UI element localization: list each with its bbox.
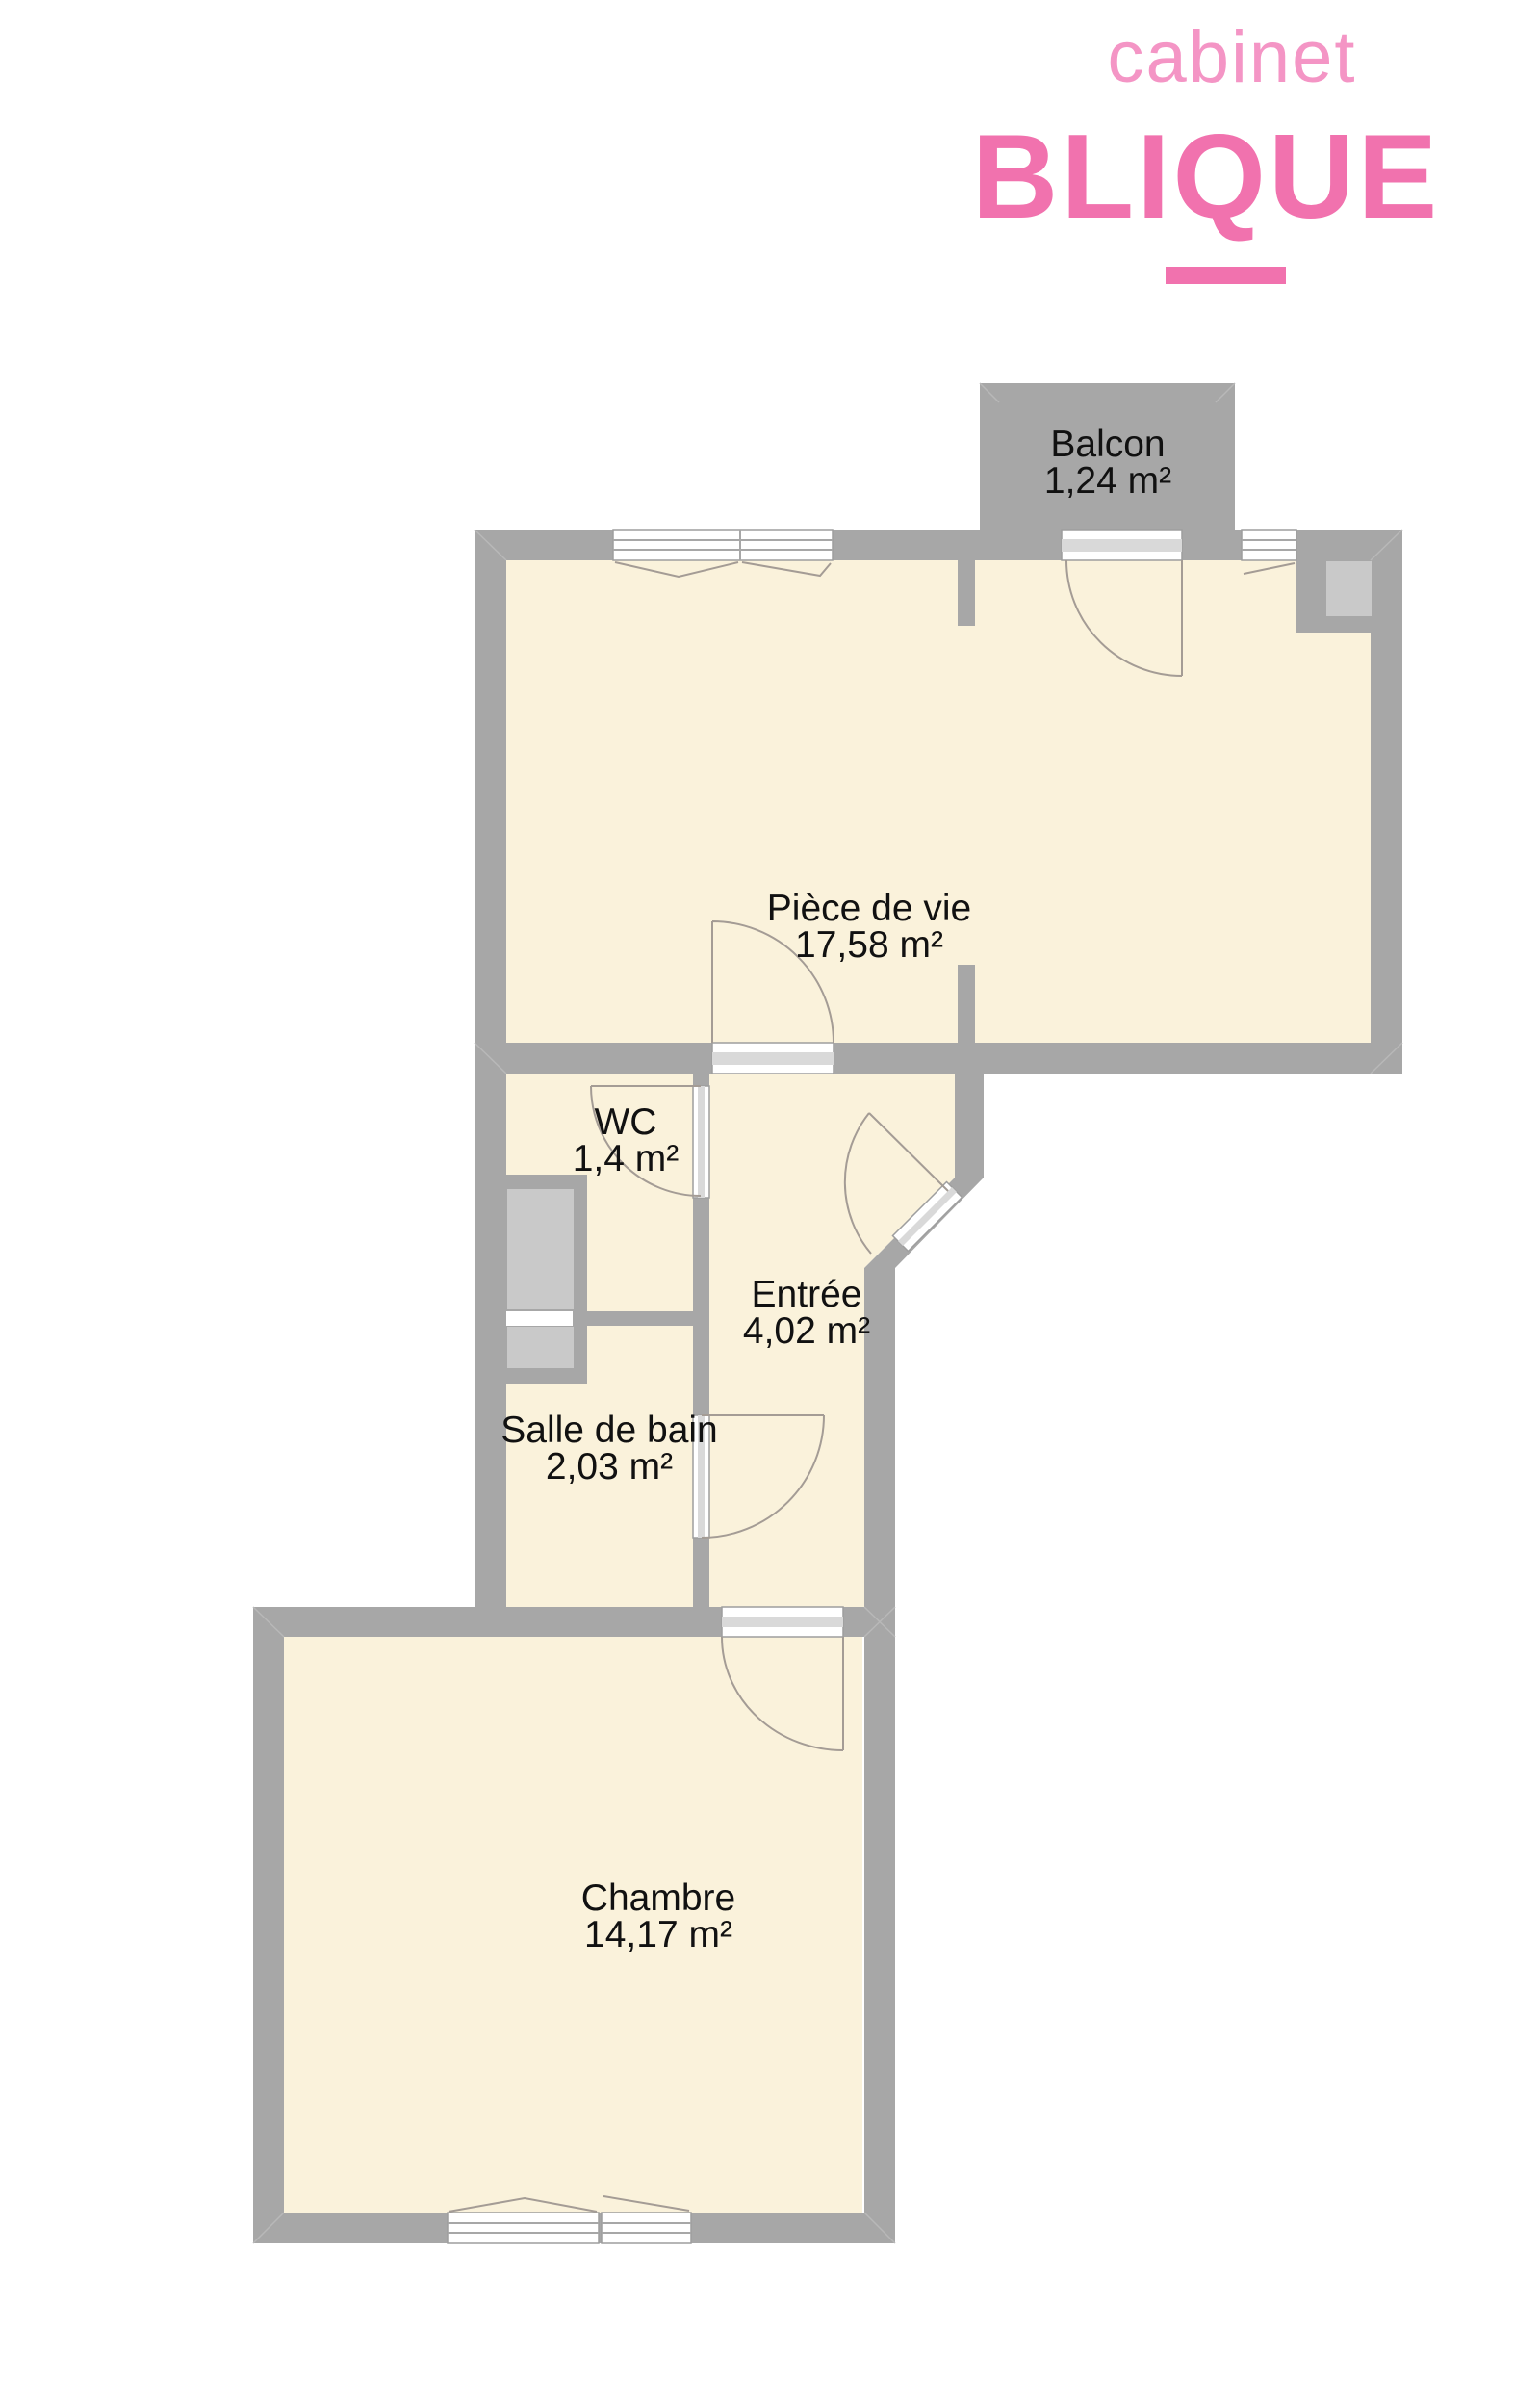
floor-plan-drawing — [0, 0, 1540, 2381]
balcony-door-core — [1062, 539, 1182, 552]
wall-entree-right-upper — [955, 1074, 984, 1178]
living-window — [613, 530, 833, 560]
room-area-salle-de-bain: 2,03 m² — [500, 1449, 718, 1486]
small-window — [1242, 530, 1296, 560]
room-label-wc: WC 1,4 m² — [573, 1104, 680, 1178]
room-name-chambre: Chambre — [581, 1880, 735, 1917]
room-area-wc: 1,4 m² — [573, 1141, 680, 1178]
floor-piece-de-vie — [506, 560, 1371, 1043]
room-label-entree: Entrée 4,02 m² — [743, 1277, 870, 1350]
room-name-piece-de-vie: Pièce de vie — [767, 891, 971, 927]
room-label-chambre: Chambre 14,17 m² — [581, 1880, 735, 1954]
chambre-window-left — [448, 2213, 599, 2243]
room-label-piece-de-vie: Pièce de vie 17,58 m² — [767, 891, 971, 964]
wall-stub-top — [958, 560, 975, 626]
wall-stub-mid — [958, 965, 975, 1043]
room-area-piece-de-vie: 17,58 m² — [767, 927, 971, 964]
room-name-balcon: Balcon — [1044, 427, 1171, 463]
wall-right-lower — [864, 1268, 895, 2243]
room-name-salle-de-bain: Salle de bain — [500, 1412, 718, 1449]
wall-wc-sdb-divider — [573, 1311, 709, 1326]
room-name-wc: WC — [573, 1104, 680, 1141]
room-label-salle-de-bain: Salle de bain 2,03 m² — [500, 1412, 718, 1486]
wall-chambre-left — [253, 1607, 284, 2243]
duct-box-sdb — [507, 1327, 574, 1368]
floor-chambre — [284, 1637, 862, 2213]
room-name-entree: Entrée — [743, 1277, 870, 1313]
living-entree-door-core — [712, 1052, 834, 1065]
room-label-balcon: Balcon 1,24 m² — [1044, 427, 1171, 500]
wall-living-bottom — [475, 1043, 1402, 1074]
room-area-chambre: 14,17 m² — [581, 1917, 735, 1954]
floor-plan-page: cabinet BLIQUE — [0, 0, 1540, 2381]
chambre-window-right — [602, 2213, 691, 2243]
duct-box-wc — [507, 1189, 574, 1309]
room-area-balcon: 1,24 m² — [1044, 463, 1171, 500]
room-area-entree: 4,02 m² — [743, 1313, 870, 1350]
duct-box-top-right — [1326, 561, 1372, 616]
wc-door-core — [698, 1086, 705, 1198]
chambre-door-core — [722, 1617, 843, 1627]
